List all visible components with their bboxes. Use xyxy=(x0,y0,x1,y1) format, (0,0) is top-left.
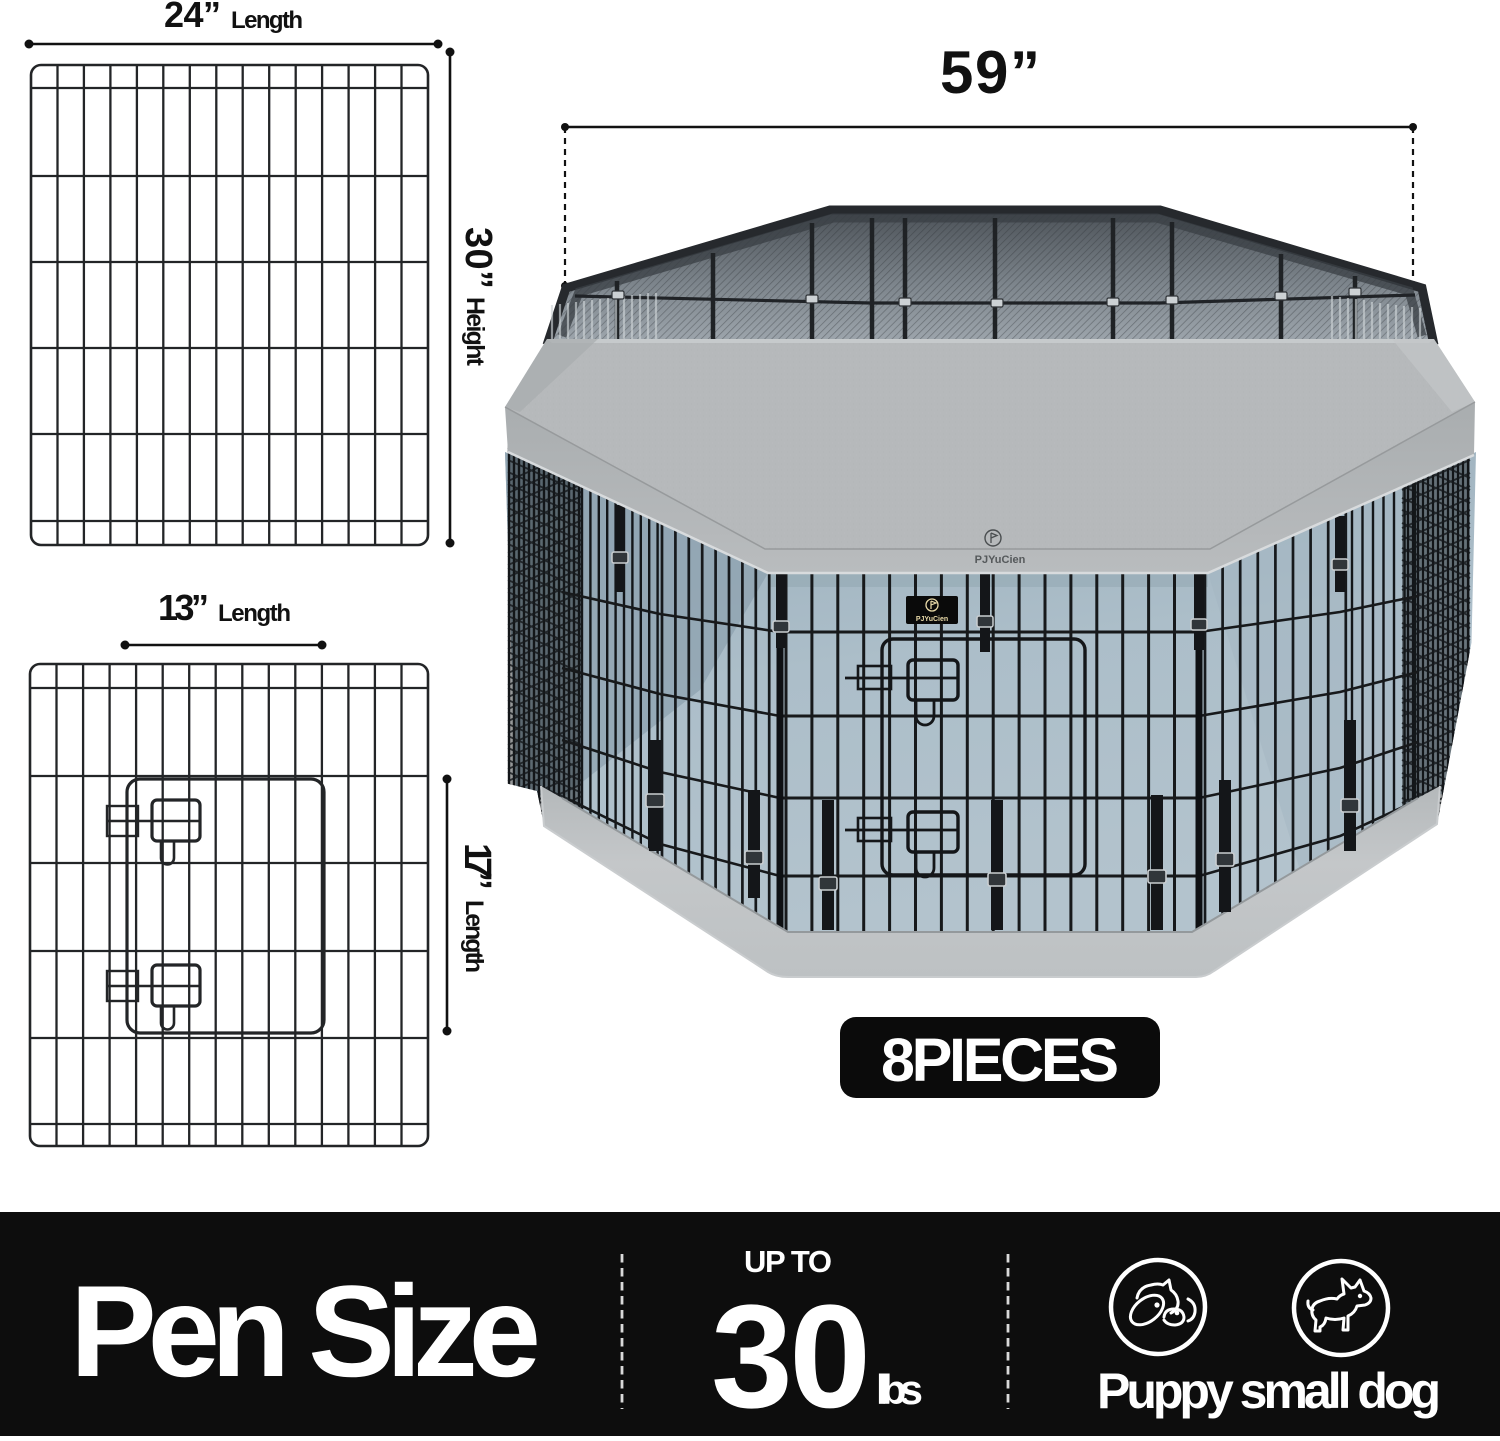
svg-text:17”: 17” xyxy=(456,843,498,890)
svg-text:Puppy small dog: Puppy small dog xyxy=(1097,1363,1441,1419)
svg-text:UP TO: UP TO xyxy=(744,1244,832,1279)
svg-text:Length: Length xyxy=(231,7,303,34)
svg-text:30: 30 xyxy=(711,1275,871,1436)
svg-text:8PIECES: 8PIECES xyxy=(881,1026,1119,1094)
svg-text:PJYuCien: PJYuCien xyxy=(975,554,1026,566)
svg-text:30”: 30” xyxy=(457,227,499,289)
svg-text:Length: Length xyxy=(460,900,488,973)
svg-text:24”: 24” xyxy=(164,0,221,35)
svg-text:13”: 13” xyxy=(158,587,209,628)
svg-text:Height: Height xyxy=(461,297,489,367)
svg-text:Pen Size: Pen Size xyxy=(70,1258,541,1404)
svg-text:lbs: lbs xyxy=(876,1366,923,1413)
svg-text:59”: 59” xyxy=(940,39,1040,106)
svg-text:Length: Length xyxy=(218,600,291,627)
svg-text:PJYuCien: PJYuCien xyxy=(916,616,948,623)
